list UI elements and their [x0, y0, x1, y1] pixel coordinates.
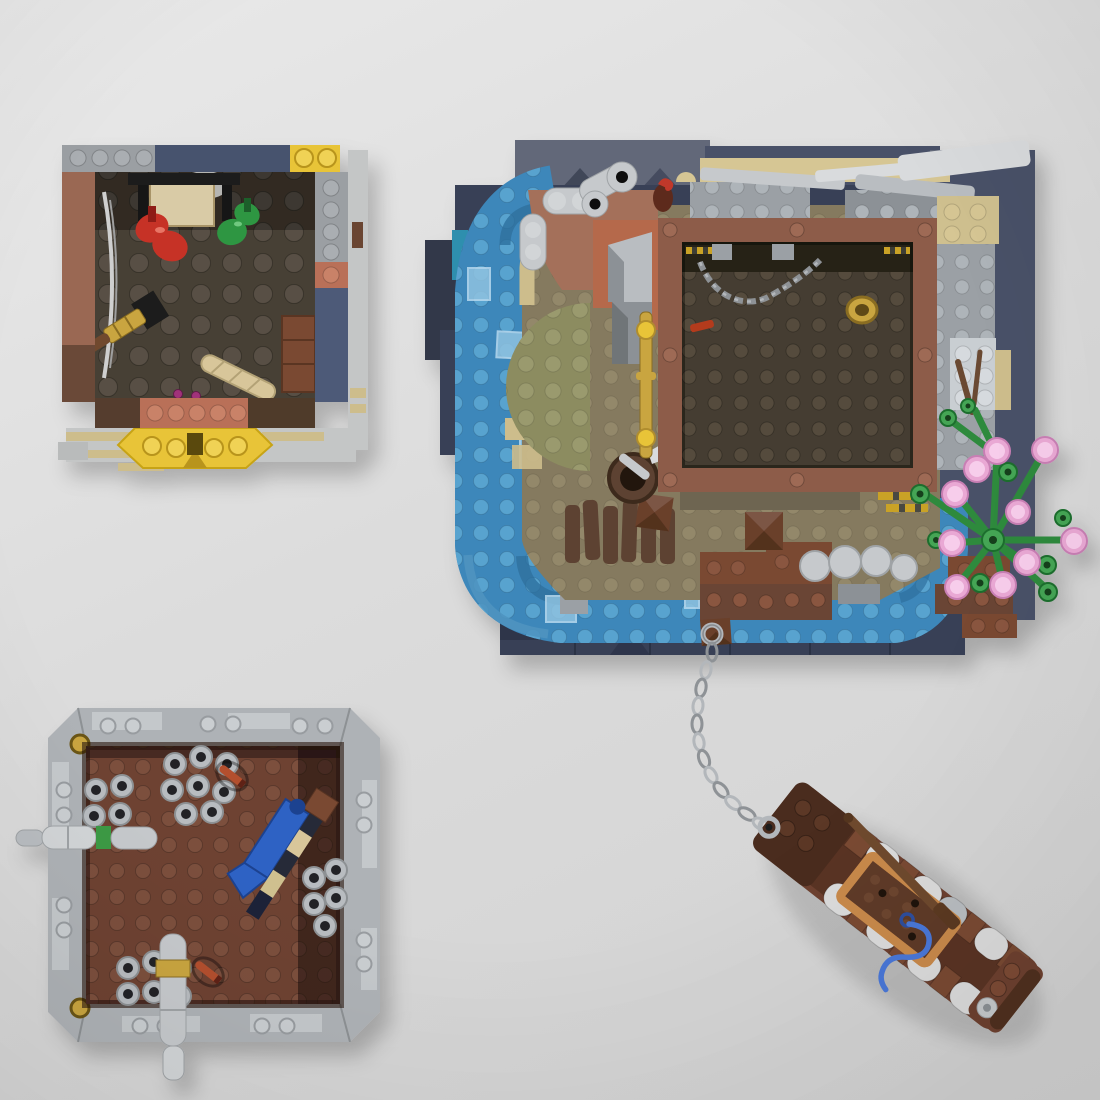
boat-module	[727, 770, 1052, 1061]
potion-room-module	[58, 145, 368, 471]
island-building	[636, 218, 1011, 492]
lego-render-scene	[0, 0, 1100, 1100]
yellow-boat-bow-piece	[118, 428, 272, 468]
latch	[352, 222, 363, 248]
horizontal-pipe	[16, 826, 157, 849]
crate	[282, 316, 315, 392]
main-island-module	[425, 140, 1087, 655]
potion-room-bottom-exterior	[58, 428, 356, 471]
vertical-pipe	[156, 934, 190, 1080]
storage-room-module	[16, 708, 380, 1080]
magenta-stud	[174, 390, 183, 399]
render-canvas	[0, 0, 1100, 1100]
